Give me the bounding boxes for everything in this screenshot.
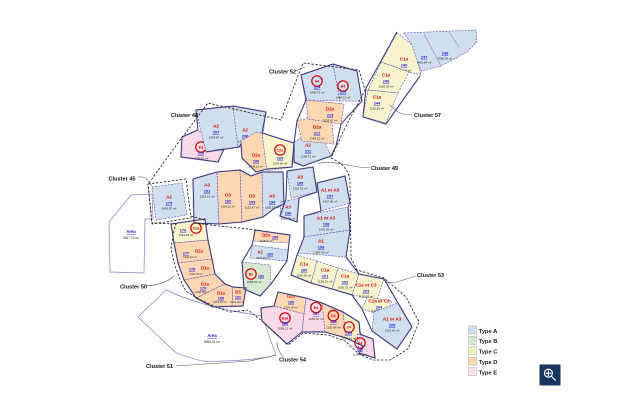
svg-text:C1a: C1a	[400, 57, 409, 62]
svg-text:202: 202	[342, 280, 349, 285]
svg-text:D2a: D2a	[252, 153, 260, 158]
svg-text:1258.33 m²: 1258.33 m²	[247, 280, 262, 284]
svg-text:1182.09 m²: 1182.09 m²	[297, 274, 311, 278]
svg-text:214: 214	[314, 85, 321, 90]
svg-text:244: 244	[374, 101, 381, 106]
svg-text:1319.13 m²: 1319.13 m²	[200, 195, 215, 199]
svg-text:1128.11 m²: 1128.11 m²	[259, 239, 272, 243]
svg-text:205: 205	[389, 323, 396, 328]
svg-text:Cluster 57: Cluster 57	[414, 113, 441, 119]
svg-text:1125.86 m²: 1125.86 m²	[326, 325, 340, 329]
svg-text:185: 185	[288, 301, 294, 305]
svg-text:A3: A3	[285, 205, 291, 210]
svg-text:D2a: D2a	[313, 125, 322, 130]
svg-text:1334.67 m²: 1334.67 m²	[209, 136, 224, 140]
svg-text:247: 247	[421, 55, 428, 60]
svg-text:4547.70 m²: 4547.70 m²	[123, 236, 139, 240]
svg-text:Type A: Type A	[479, 329, 498, 335]
svg-text:1162.07 m²: 1162.07 m²	[189, 272, 203, 276]
svg-text:D2a: D2a	[326, 107, 335, 112]
svg-text:212: 212	[314, 131, 321, 136]
svg-text:A2: A2	[257, 250, 263, 255]
svg-text:3009.12 m²: 3009.12 m²	[278, 327, 293, 331]
svg-text:189: 189	[346, 331, 353, 336]
svg-text:Area: Area	[207, 333, 217, 338]
svg-text:1400.87 m²: 1400.87 m²	[162, 207, 177, 211]
svg-text:A2: A2	[242, 128, 248, 133]
svg-text:177: 177	[183, 252, 189, 256]
svg-text:C1a: C1a	[341, 274, 350, 279]
svg-text:1138.31 m²: 1138.31 m²	[318, 280, 332, 284]
svg-text:181: 181	[235, 296, 241, 300]
svg-text:Cluster 48: Cluster 48	[171, 113, 198, 119]
svg-text:1151.27 m²: 1151.27 m²	[213, 300, 227, 304]
svg-text:215: 215	[340, 90, 347, 95]
svg-text:1310.41 m²: 1310.41 m²	[293, 187, 308, 191]
svg-text:1114.22 m²: 1114.22 m²	[221, 205, 235, 209]
svg-text:1268.71 m²: 1268.71 m²	[301, 155, 316, 159]
svg-text:192: 192	[225, 199, 232, 204]
svg-text:1134.58 m²: 1134.58 m²	[273, 162, 287, 166]
svg-text:Area: Area	[126, 229, 136, 234]
svg-text:Cluster 54: Cluster 54	[279, 358, 307, 364]
svg-text:213: 213	[327, 113, 334, 118]
svg-text:198: 198	[323, 222, 330, 227]
svg-text:1,397.03 m²: 1,397.03 m²	[313, 251, 328, 255]
svg-text:5994.31 m²: 5994.31 m²	[204, 340, 220, 344]
svg-text:A1 or A3: A1 or A3	[321, 188, 340, 193]
svg-text:1035.32 m²: 1035.32 m²	[338, 286, 353, 290]
svg-text:1056.40 m²: 1056.40 m²	[309, 317, 324, 321]
svg-text:C2a: C2a	[277, 149, 285, 153]
svg-text:180: 180	[218, 297, 224, 301]
svg-text:211: 211	[305, 149, 312, 154]
svg-text:1152.81 m²: 1152.81 m²	[370, 107, 384, 111]
svg-text:191: 191	[204, 189, 211, 194]
svg-text:2144.12 m²: 2144.12 m²	[310, 137, 325, 141]
svg-text:C1a: C1a	[373, 95, 382, 100]
svg-text:Type E: Type E	[479, 370, 498, 376]
svg-text:183: 183	[267, 253, 273, 257]
svg-text:C1a: C1a	[382, 73, 391, 78]
svg-text:207: 207	[213, 130, 220, 135]
svg-text:C2a: C2a	[193, 227, 201, 231]
svg-text:1427.06 m²: 1427.06 m²	[323, 200, 338, 204]
svg-text:1364.36 m²: 1364.36 m²	[256, 256, 270, 260]
svg-text:C1a: C1a	[321, 268, 330, 273]
svg-text:175: 175	[166, 201, 173, 206]
svg-text:Type D: Type D	[479, 360, 498, 366]
svg-text:A3: A3	[297, 175, 303, 180]
svg-text:A2: A2	[305, 143, 311, 148]
svg-text:1122.87 m²: 1122.87 m²	[245, 206, 259, 210]
svg-text:Cluster 51: Cluster 51	[146, 364, 173, 370]
svg-text:E3: E3	[199, 146, 204, 150]
svg-text:Cluster 45: Cluster 45	[109, 177, 136, 183]
svg-text:C1a or C3: C1a or C3	[355, 283, 377, 288]
svg-text:187: 187	[313, 311, 320, 316]
svg-text:Cluster 52: Cluster 52	[269, 70, 296, 76]
svg-text:A1 or A3: A1 or A3	[317, 216, 336, 221]
svg-text:182: 182	[258, 274, 265, 279]
svg-text:1323.42 m²: 1323.42 m²	[385, 329, 400, 333]
svg-text:A2: A2	[166, 195, 172, 200]
svg-text:A1: A1	[318, 239, 324, 244]
svg-text:199: 199	[318, 245, 325, 250]
svg-text:D1a: D1a	[201, 266, 209, 271]
svg-text:197: 197	[327, 194, 334, 199]
svg-text:D3: D3	[225, 193, 231, 198]
svg-text:194: 194	[269, 200, 276, 205]
svg-text:Type C: Type C	[479, 350, 499, 356]
svg-text:Cluster 49: Cluster 49	[371, 166, 398, 172]
svg-text:D3: D3	[235, 290, 241, 295]
svg-text:A2: A2	[213, 124, 219, 129]
svg-text:D1a: D1a	[217, 291, 225, 296]
svg-text:1144.41 m²: 1144.41 m²	[183, 255, 197, 259]
svg-text:208: 208	[253, 160, 259, 164]
svg-text:249: 249	[401, 63, 408, 68]
svg-text:C1a or C3: C1a or C3	[368, 299, 390, 304]
svg-text:201: 201	[322, 274, 329, 279]
svg-text:246: 246	[383, 79, 390, 84]
svg-text:A3: A3	[204, 183, 210, 188]
svg-text:C1a: C1a	[300, 262, 309, 267]
svg-text:248: 248	[442, 51, 449, 56]
svg-text:178: 178	[189, 268, 195, 272]
svg-text:3203.42 m²: 3203.42 m²	[323, 119, 338, 123]
svg-text:Type B: Type B	[479, 339, 498, 345]
svg-text:Cluster 53: Cluster 53	[417, 273, 444, 279]
svg-text:D3: D3	[249, 194, 255, 199]
svg-text:D2a: D2a	[195, 249, 203, 254]
svg-text:209: 209	[277, 156, 284, 161]
svg-text:210: 210	[198, 151, 205, 156]
svg-text:176: 176	[180, 228, 187, 233]
svg-text:196: 196	[285, 211, 292, 216]
svg-text:1141.02 m²: 1141.02 m²	[230, 300, 244, 304]
svg-text:A1 or A3: A1 or A3	[383, 317, 402, 322]
svg-text:7096.33 m²: 7096.33 m²	[438, 57, 453, 61]
svg-text:A3: A3	[269, 194, 275, 199]
svg-text:B2: B2	[249, 273, 254, 277]
svg-text:193: 193	[249, 200, 256, 205]
svg-text:179: 179	[200, 287, 206, 291]
svg-text:195: 195	[297, 181, 304, 186]
svg-text:5491.84 m²: 5491.84 m²	[417, 61, 432, 65]
svg-text:Cluster 50: Cluster 50	[120, 285, 147, 291]
svg-text:184: 184	[272, 236, 278, 240]
svg-text:203: 203	[363, 289, 370, 294]
svg-text:188: 188	[330, 319, 337, 324]
svg-text:1406.72 m²: 1406.72 m²	[310, 91, 325, 95]
svg-text:1144.63 m²: 1144.63 m²	[179, 233, 193, 237]
svg-text:1433.92 m²: 1433.92 m²	[319, 228, 334, 232]
svg-text:186: 186	[282, 321, 289, 326]
svg-text:200: 200	[301, 268, 308, 273]
svg-text:D2a: D2a	[262, 233, 270, 238]
svg-text:2192.35 m²: 2192.35 m²	[379, 85, 394, 89]
svg-text:1484.12 m²: 1484.12 m²	[336, 96, 351, 100]
